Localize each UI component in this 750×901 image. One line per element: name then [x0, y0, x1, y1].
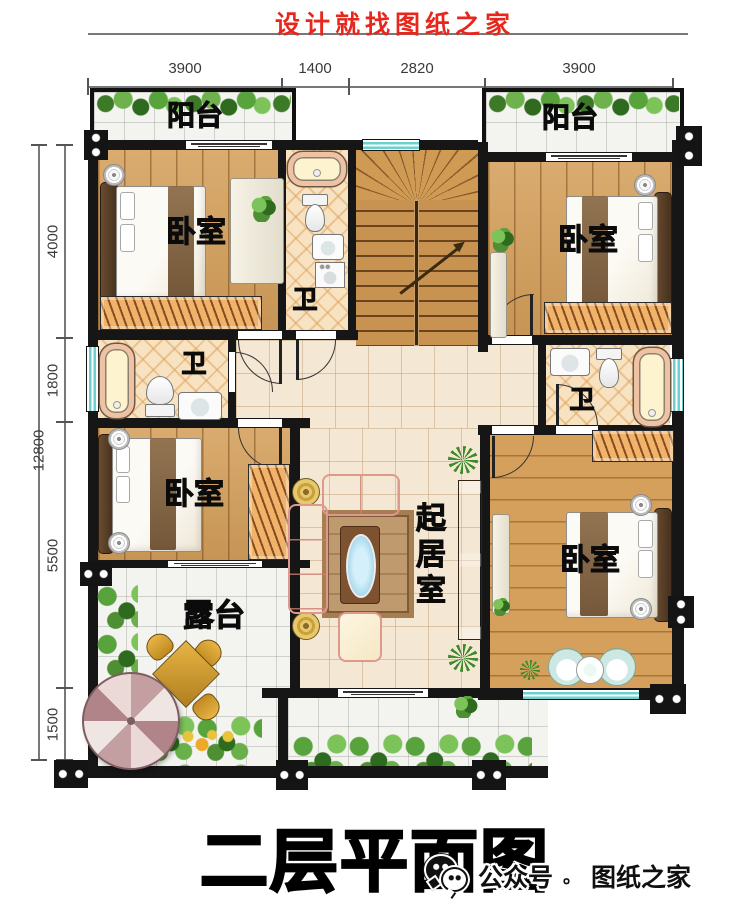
plant: [492, 598, 510, 616]
dim-top-2: 1400: [285, 60, 345, 77]
bedside-lamp: [630, 494, 652, 516]
plant: [490, 228, 514, 252]
dim-tick: [31, 759, 47, 761]
dim-tick: [87, 78, 89, 95]
dim-left-1: 4000: [45, 211, 62, 273]
wall-sep-bath-stairs: [348, 142, 356, 338]
armchair: [338, 612, 382, 662]
wechat-account-label: 公众号: [478, 858, 553, 894]
window-right-bath: [670, 358, 684, 412]
room-label-bedroom-tr: 卧室: [542, 226, 634, 256]
wechat-bubble-small: [441, 867, 468, 892]
bedside-lamp: [108, 532, 130, 554]
wardrobe: [100, 296, 262, 330]
column: [84, 130, 108, 160]
bathtub: [100, 344, 134, 418]
page-title: 设计就找图纸之家: [250, 5, 540, 41]
tv-bench: [490, 252, 507, 338]
sink: [178, 392, 222, 420]
column: [650, 684, 686, 714]
side-table: [292, 612, 320, 640]
room-label-bedroom-tl: 卧室: [150, 218, 242, 248]
pillow: [638, 234, 653, 262]
dim-left-total: 12800: [31, 420, 48, 482]
toilet: [599, 358, 619, 388]
stair-winders: [356, 150, 478, 200]
sofa-loveseat: [322, 474, 400, 516]
terrace-flowers: [178, 726, 234, 760]
door-leaf: [530, 294, 533, 336]
wall-lower-terrace-left: [278, 696, 288, 768]
bedside-lamp: [108, 428, 130, 450]
room-label-bath-left: 卫: [176, 352, 212, 377]
dim-tick: [56, 687, 73, 689]
pillow: [116, 476, 130, 503]
coffee-table-top: [346, 534, 376, 598]
window-stairs: [362, 139, 420, 151]
column: [676, 126, 702, 166]
floor-plan-canvas: 设计就找图纸之家 3900 1400 2820 3900 12800 4000 …: [0, 0, 750, 901]
dim-line-left: [64, 145, 66, 761]
toilet: [305, 204, 325, 232]
plant: [520, 660, 540, 680]
footer-watermark: 公众号 。 图纸之家: [478, 858, 691, 894]
brand-name: 图纸之家: [591, 858, 691, 894]
column: [472, 760, 506, 790]
stair-rail: [414, 200, 419, 346]
balcony-tr-slider: [546, 153, 632, 161]
door-leaf: [296, 340, 299, 380]
dim-top-3: 2820: [387, 60, 447, 77]
washing-machine: [315, 262, 345, 288]
plant: [452, 696, 478, 718]
dim-left-2: 1800: [45, 350, 62, 412]
dim-left-3: 5500: [45, 525, 62, 587]
room-label-living: 起居室: [412, 496, 442, 616]
bathtub: [634, 348, 670, 426]
dim-top-1: 3900: [155, 60, 215, 77]
wall-sep-stairs-bedroom: [478, 142, 488, 352]
room-label-terrace: 露台: [166, 600, 262, 631]
wardrobe: [592, 430, 674, 462]
plant: [250, 196, 276, 222]
footer-separator: 。: [563, 863, 581, 889]
door-leaf: [556, 384, 559, 426]
toilet-tank: [145, 404, 175, 417]
balcony-tl-slider: [186, 141, 272, 149]
dim-tick: [56, 144, 73, 146]
dim-tick: [348, 78, 350, 95]
column: [54, 760, 88, 788]
living-slider: [338, 689, 428, 697]
plant: [448, 446, 478, 474]
room-label-balcony-tr: 阳台: [520, 104, 620, 132]
dim-tick: [31, 144, 47, 146]
pillow: [638, 550, 653, 578]
sink: [550, 348, 590, 376]
terrace-slider: [168, 561, 262, 567]
sink: [312, 234, 344, 260]
bathtub: [288, 152, 346, 186]
column: [80, 562, 112, 586]
door-opening: [238, 419, 282, 427]
pillow: [638, 202, 653, 230]
pillow: [120, 224, 135, 252]
window-bedroom-br: [522, 689, 640, 700]
dim-left-4: 1500: [45, 694, 62, 756]
pillow: [120, 192, 135, 220]
wall-bath-right-left: [538, 345, 546, 431]
toilet: [146, 376, 174, 405]
room-label-bath-right: 卫: [564, 388, 600, 413]
door-opening: [238, 331, 282, 339]
room-label-bedroom-br: 卧室: [544, 546, 636, 576]
door-opening: [296, 331, 336, 339]
side-table: [292, 478, 320, 506]
column: [276, 760, 308, 790]
bedside-lamp: [634, 174, 656, 196]
room-label-balcony-tl: 阳台: [145, 102, 245, 130]
wardrobe: [544, 302, 672, 334]
tea-table: [576, 656, 604, 684]
sofa-long: [288, 504, 328, 614]
dim-tick: [56, 421, 73, 423]
bedside-lamp: [630, 598, 652, 620]
door-opening: [492, 426, 534, 434]
column: [668, 596, 694, 628]
dim-tick: [56, 337, 73, 339]
tv-cabinet: [458, 480, 482, 640]
window-left-bath: [86, 346, 99, 412]
door-leaf: [279, 340, 282, 384]
wall-terrace-bottom: [56, 766, 310, 778]
wechat-icon: [424, 854, 472, 898]
pillow: [638, 520, 653, 548]
room-label-bath-top: 卫: [288, 288, 322, 313]
room-label-bedroom-bl: 卧室: [148, 480, 240, 510]
patio-umbrella: [82, 672, 180, 770]
dim-top-4: 3900: [549, 60, 609, 77]
plant: [448, 644, 478, 672]
door-leaf: [492, 436, 495, 478]
wardrobe: [248, 464, 290, 560]
bedside-lamp: [103, 164, 125, 186]
pillow: [116, 446, 130, 473]
